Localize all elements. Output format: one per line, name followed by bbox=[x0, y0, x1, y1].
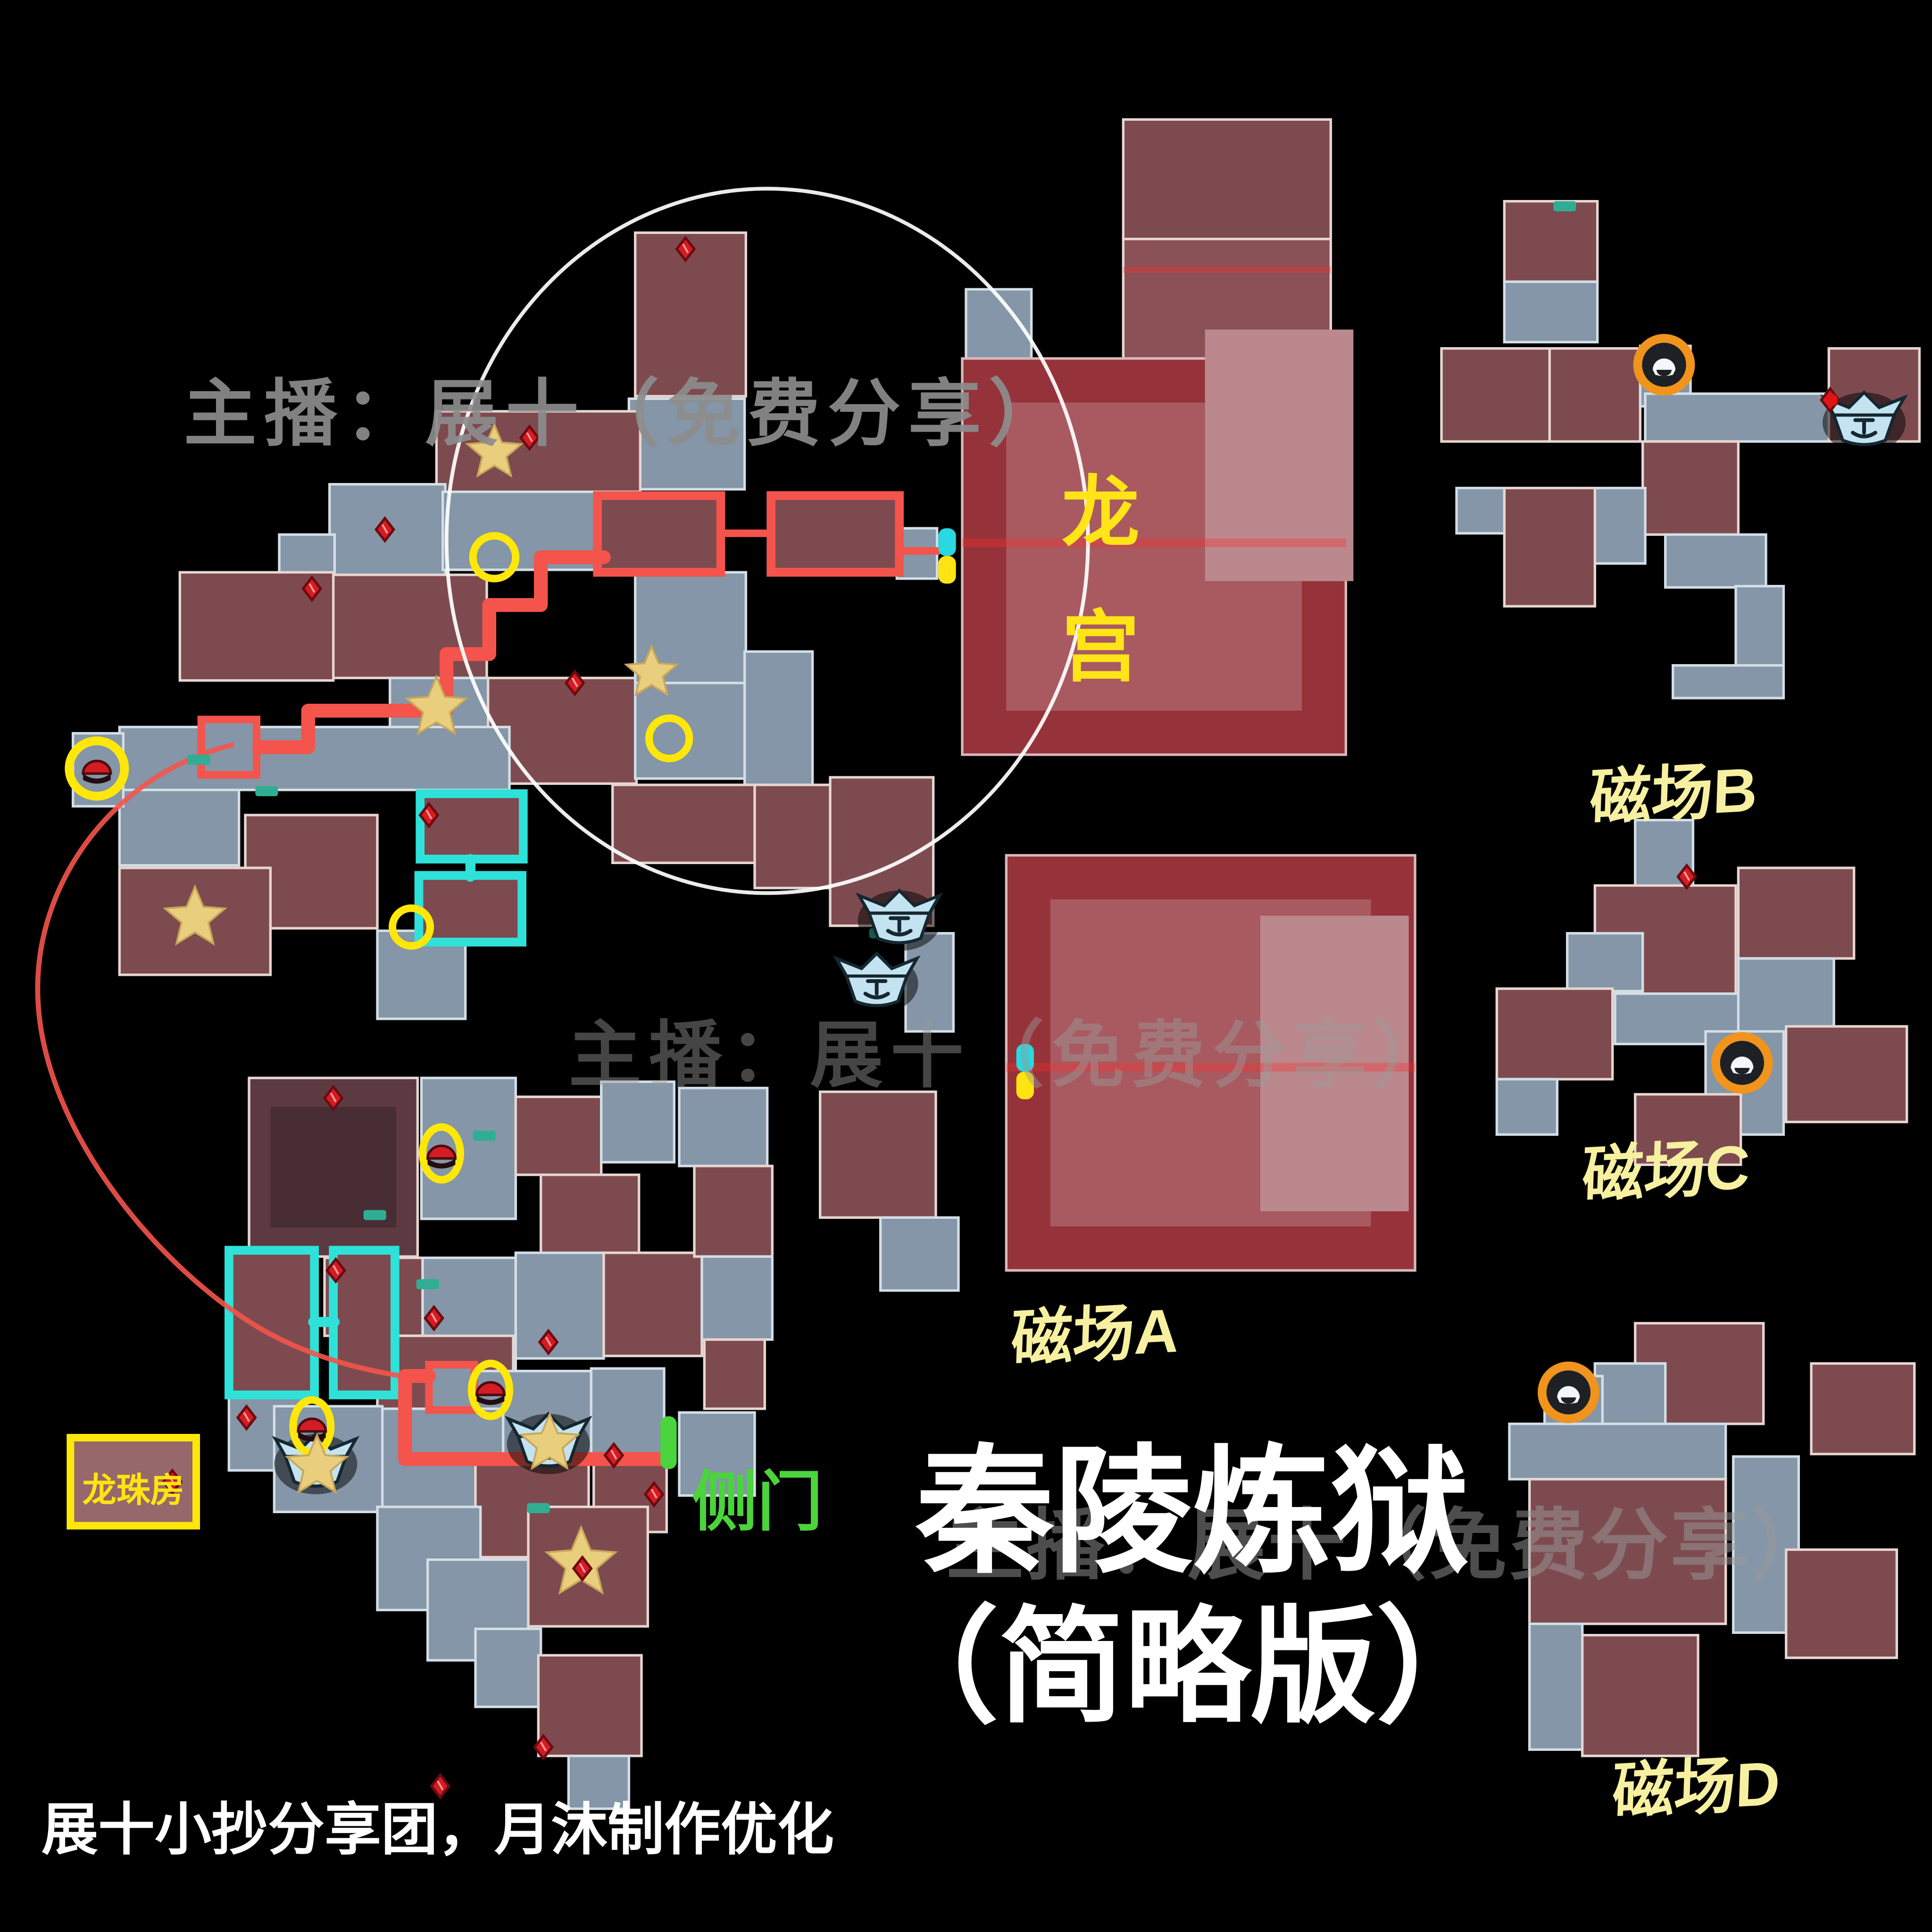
watermark-top: 主播：展十（免费分享） bbox=[183, 355, 1069, 460]
room bbox=[538, 1655, 641, 1756]
room bbox=[881, 1217, 958, 1291]
room bbox=[1504, 488, 1595, 607]
teal-door-marker bbox=[473, 1131, 496, 1141]
page-title-line2: （简略版） bbox=[873, 1565, 1502, 1747]
label-magnet-field-c: 磁场C bbox=[1581, 1117, 1752, 1216]
room bbox=[1643, 441, 1739, 534]
room bbox=[1123, 119, 1331, 239]
red-helmet-icon bbox=[428, 1146, 456, 1168]
room bbox=[1786, 1026, 1907, 1122]
room bbox=[1666, 534, 1766, 587]
red-dot-marker bbox=[1825, 394, 1838, 407]
room bbox=[1738, 958, 1834, 1032]
teal-door-marker bbox=[187, 755, 210, 765]
room bbox=[1457, 488, 1504, 533]
room bbox=[333, 575, 487, 678]
red-helmet-icon bbox=[298, 1419, 326, 1441]
orange-ring-icon bbox=[1638, 338, 1690, 391]
laser-line bbox=[1123, 266, 1331, 273]
room bbox=[1645, 394, 1829, 441]
label-magnet-field-b: 磁场B bbox=[1589, 740, 1759, 839]
orange-ring-icon bbox=[1715, 1036, 1768, 1089]
room bbox=[1497, 989, 1612, 1079]
teal-door-marker bbox=[416, 1279, 439, 1289]
crown-icon bbox=[858, 891, 941, 951]
side-door-marker bbox=[660, 1416, 677, 1469]
teal-door-marker bbox=[1553, 201, 1576, 211]
room bbox=[1497, 1079, 1557, 1134]
room bbox=[1504, 201, 1597, 282]
label-side-door: 侧门 bbox=[692, 1449, 823, 1543]
laser-line bbox=[962, 538, 1346, 547]
room bbox=[516, 1253, 604, 1358]
door-capsule-yellow bbox=[938, 556, 956, 584]
room bbox=[1549, 349, 1640, 441]
room bbox=[1736, 586, 1783, 667]
room bbox=[475, 1629, 541, 1707]
room bbox=[516, 1097, 601, 1174]
teal-door-marker bbox=[527, 1503, 550, 1513]
red-helmet-icon bbox=[83, 761, 111, 783]
route-square-outline bbox=[429, 1365, 474, 1410]
room bbox=[604, 1253, 702, 1356]
room bbox=[1811, 1364, 1915, 1454]
room bbox=[745, 651, 813, 785]
room bbox=[1567, 933, 1643, 991]
room bbox=[270, 1107, 396, 1228]
teal-door-marker bbox=[255, 786, 278, 796]
room bbox=[1738, 868, 1854, 958]
label-dragon-palace: 龙宫 bbox=[1054, 448, 1147, 716]
room bbox=[1582, 1635, 1698, 1756]
credit-text: 展十小抄分享团，月沐制作优化 bbox=[42, 1783, 834, 1865]
room bbox=[704, 1340, 765, 1409]
label-magnet-field-d: 磁场D bbox=[1611, 1734, 1782, 1832]
teal-door-marker bbox=[364, 1210, 386, 1220]
cyan-outline-room bbox=[229, 1250, 314, 1395]
room bbox=[591, 1368, 664, 1457]
room bbox=[1595, 488, 1645, 564]
route-room-outline bbox=[771, 496, 899, 573]
room bbox=[1509, 1424, 1726, 1479]
label-dragon-ball-room: 龙珠房 bbox=[73, 1463, 194, 1512]
label-magnet-field-a: 磁场A bbox=[1010, 1281, 1181, 1380]
room bbox=[1441, 349, 1549, 441]
room bbox=[119, 790, 239, 866]
cyan-outline-room bbox=[419, 875, 522, 942]
orange-ring-icon bbox=[1542, 1366, 1595, 1419]
room bbox=[694, 1166, 772, 1257]
room bbox=[702, 1257, 772, 1340]
room bbox=[1673, 666, 1784, 698]
route-room-outline bbox=[598, 496, 721, 573]
map-screenshot: 主播：展十（免费分享） 主播：展十（免费分享） 主播：展十（免费分享） 龙宫 磁… bbox=[0, 0, 1932, 1932]
room bbox=[1504, 282, 1597, 342]
room bbox=[1530, 1624, 1582, 1750]
room bbox=[613, 785, 764, 863]
red-helmet-icon bbox=[477, 1382, 505, 1405]
watermark-middle: 主播：展十（免费分享） bbox=[568, 996, 1454, 1102]
room bbox=[820, 1092, 936, 1218]
cyan-outline-room bbox=[420, 794, 524, 859]
door-capsule-cyan bbox=[938, 528, 956, 556]
